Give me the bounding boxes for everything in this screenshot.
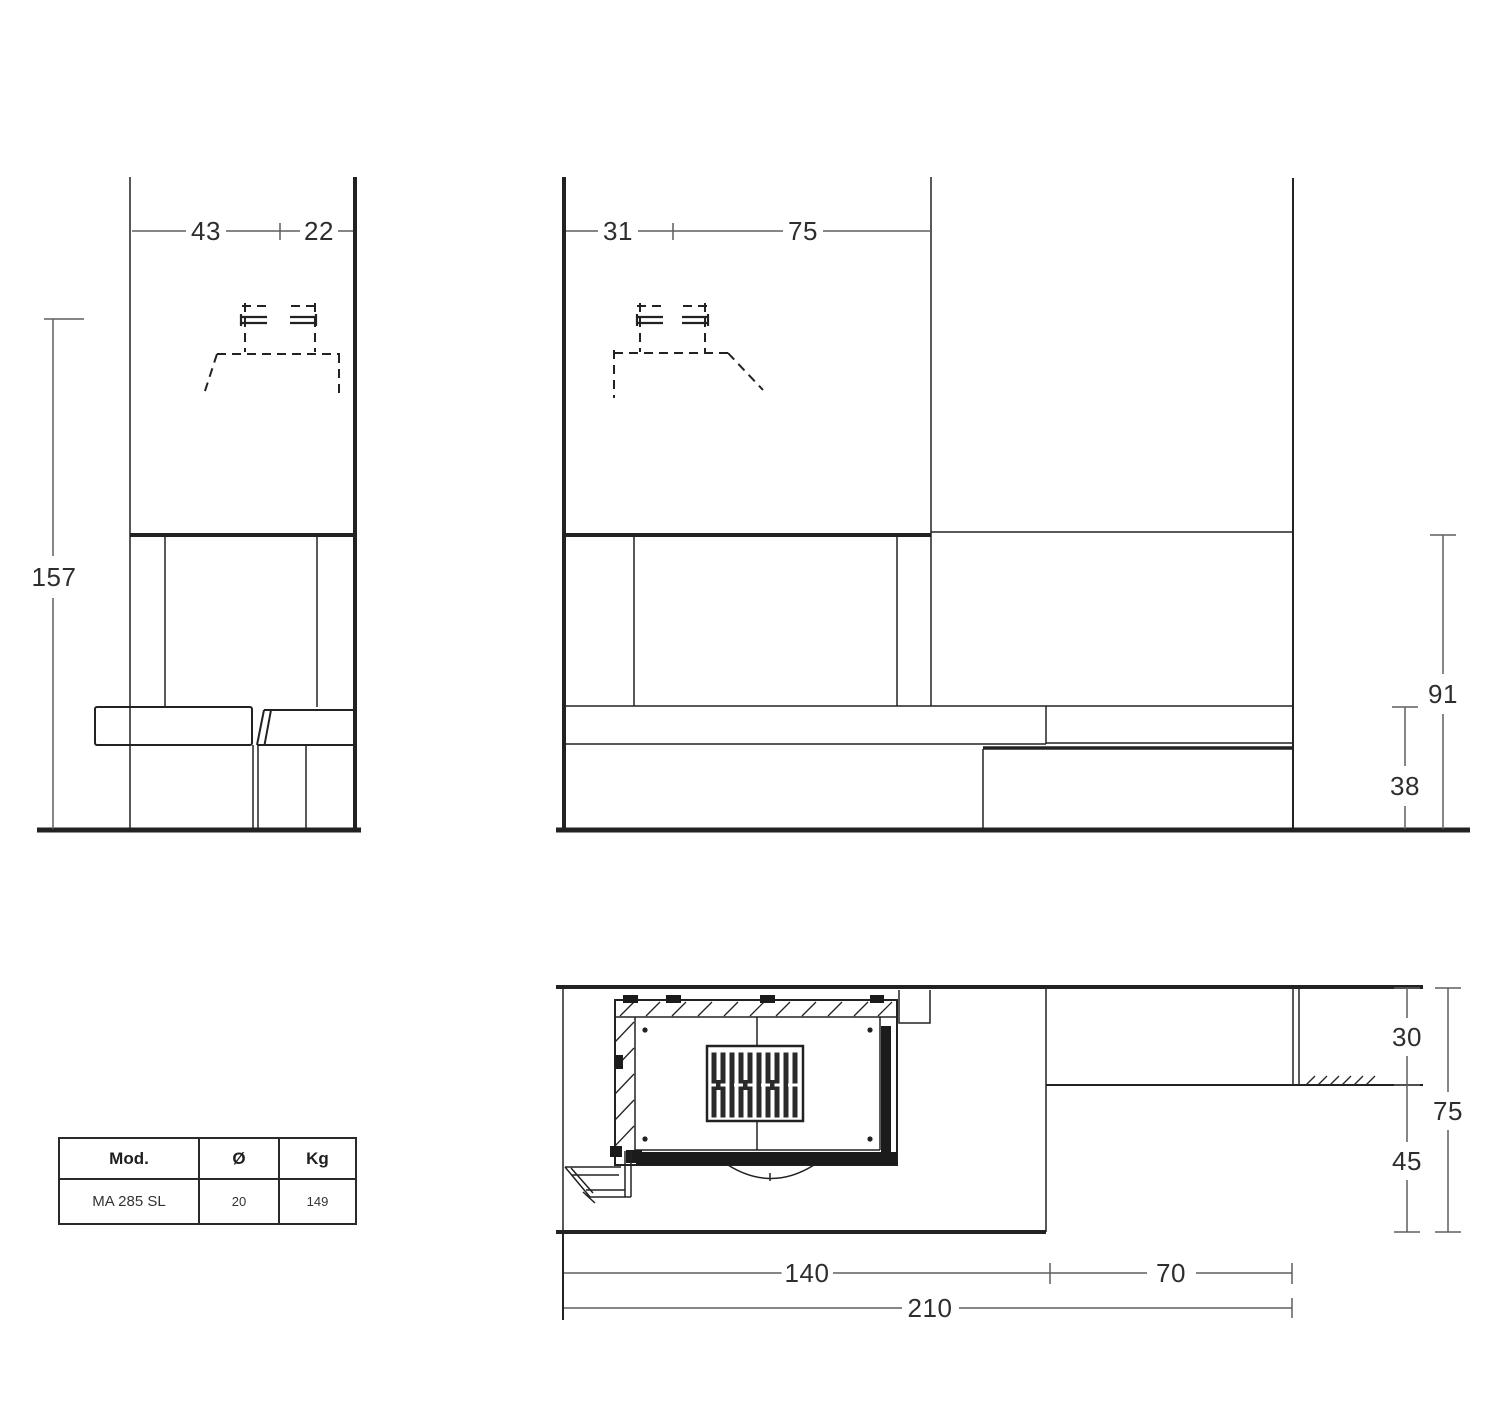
spec-table-header-weight: Kg	[279, 1138, 356, 1179]
insert-top-tab-2	[666, 995, 681, 1003]
insert-corner-block-2	[626, 1150, 642, 1163]
dim-label-front-38: 38	[1387, 773, 1423, 799]
insert-top-tab-3	[760, 995, 775, 1003]
dim-label-plan-140: 140	[782, 1260, 833, 1286]
insert-top-tab-4	[870, 995, 884, 1003]
plan-view	[556, 987, 1461, 1320]
dim-label-front-31: 31	[600, 218, 636, 244]
insert-grate-grill	[707, 1046, 803, 1121]
spec-table-model-value: MA 285 SL	[59, 1179, 199, 1224]
front-view	[556, 177, 1470, 830]
spec-table-diameter-value: 20	[199, 1179, 279, 1224]
front-flue-damper-marks	[636, 314, 709, 326]
insert-corner-block-1	[610, 1146, 622, 1157]
plan-bench-front-hatch	[1306, 1076, 1375, 1085]
plan-flue-notch	[899, 990, 930, 1023]
dim-label-side-22: 22	[301, 218, 337, 244]
dim-label-front-91: 91	[1425, 681, 1461, 707]
spec-table-data-row: MA 285 SL 20 149	[59, 1179, 356, 1224]
spec-table-header-model: Mod.	[59, 1138, 199, 1179]
insert-right-band-solid	[881, 1026, 891, 1153]
dim-label-plan-30: 30	[1389, 1024, 1425, 1050]
dim-label-plan-75: 75	[1430, 1098, 1466, 1124]
insert-top-tab-1	[623, 995, 638, 1003]
insert-left-latch	[614, 1055, 623, 1069]
side-bench-left	[95, 707, 252, 745]
front-dimension-lines	[566, 223, 1456, 829]
spec-table-weight-value: 149	[279, 1179, 356, 1224]
dim-label-side-157: 157	[29, 564, 80, 590]
insert-outer-frame	[615, 1000, 897, 1165]
insert-left-band-hatch	[615, 1022, 634, 1146]
side-flue-dashed-outline	[204, 303, 340, 395]
dim-label-plan-210: 210	[905, 1295, 956, 1321]
insert-solid-parts	[610, 995, 897, 1165]
plan-firebox-insert	[610, 995, 897, 1181]
dim-label-front-75: 75	[785, 218, 821, 244]
insert-top-band-hatch	[620, 1002, 892, 1016]
side-flue-damper-marks	[240, 314, 317, 326]
side-bench-right	[257, 710, 353, 745]
insert-front-band-solid	[636, 1152, 897, 1165]
spec-table: Mod. Ø Kg MA 285 SL 20 149	[58, 1137, 357, 1225]
plan-left-wall-stub	[565, 1151, 631, 1203]
spec-table-header-diameter: Ø	[199, 1138, 279, 1179]
side-view	[37, 177, 361, 830]
dim-label-side-43: 43	[188, 218, 224, 244]
spec-table-header-row: Mod. Ø Kg	[59, 1138, 356, 1179]
technical-drawing-page: 43 22 157 31 75 91 38 30 45 75 140 70 21…	[0, 0, 1500, 1427]
dim-label-plan-45: 45	[1389, 1148, 1425, 1174]
dim-label-plan-70: 70	[1153, 1260, 1189, 1286]
insert-door-swing-arc	[728, 1165, 814, 1179]
side-dimension-lines	[44, 223, 353, 829]
